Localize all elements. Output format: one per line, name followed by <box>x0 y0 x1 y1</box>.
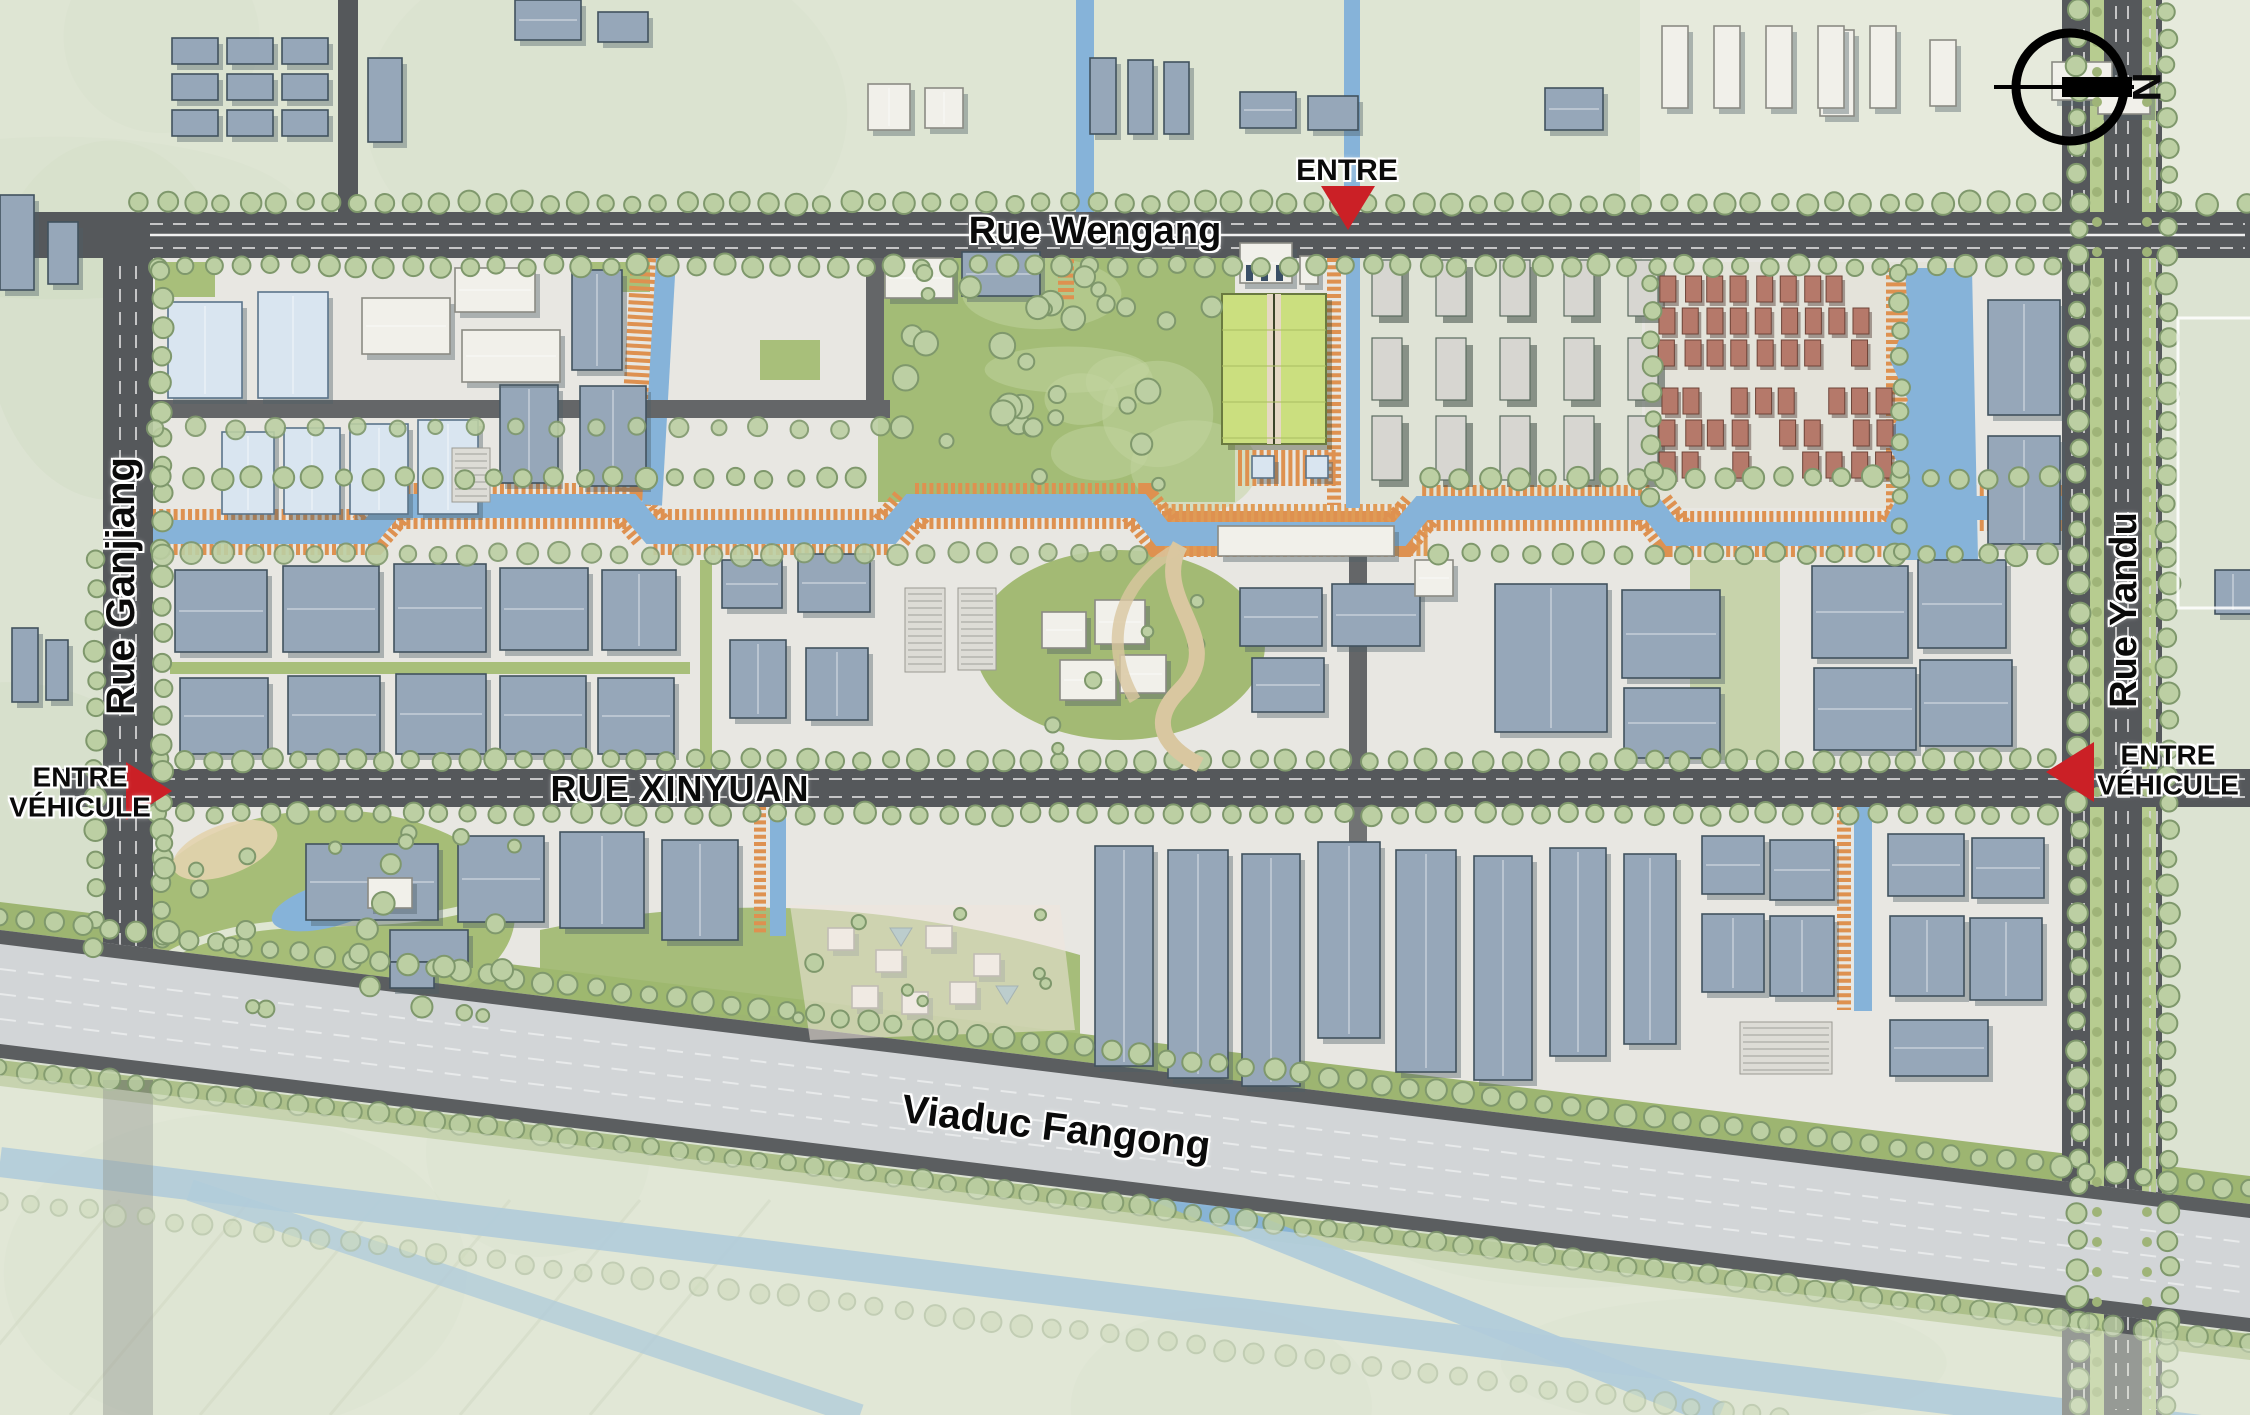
road-north-stub <box>338 0 358 214</box>
masterplan-map: Rue Wengang Rue Ganjiang Rue Yandu RUE X… <box>0 0 2250 1415</box>
road-label-rue-ganjiang: Rue Ganjiang <box>100 457 142 715</box>
entrance-label-east-line2: VÉHICULE <box>2097 770 2239 800</box>
sports-hall <box>1222 294 1332 450</box>
entrance-label-north: ENTRE <box>1296 155 1398 187</box>
entrance-label-west-line1: ENTRE <box>9 762 151 792</box>
road-label-rue-wengang: Rue Wengang <box>969 211 1222 251</box>
road-label-rue-yandu: Rue Yandu <box>2104 512 2144 708</box>
entrance-label-west: ENTRE VÉHICULE <box>9 762 151 821</box>
road-rue-xinyuan <box>60 769 2250 807</box>
road-label-rue-xinyuan: RUE XINYUAN <box>550 770 809 808</box>
entrance-label-west-line2: VÉHICULE <box>9 792 151 822</box>
entrance-label-east: ENTRE VÉHICULE <box>2097 740 2239 799</box>
entrance-label-east-line1: ENTRE <box>2097 740 2239 770</box>
compass-north-label: N <box>2125 73 2167 102</box>
